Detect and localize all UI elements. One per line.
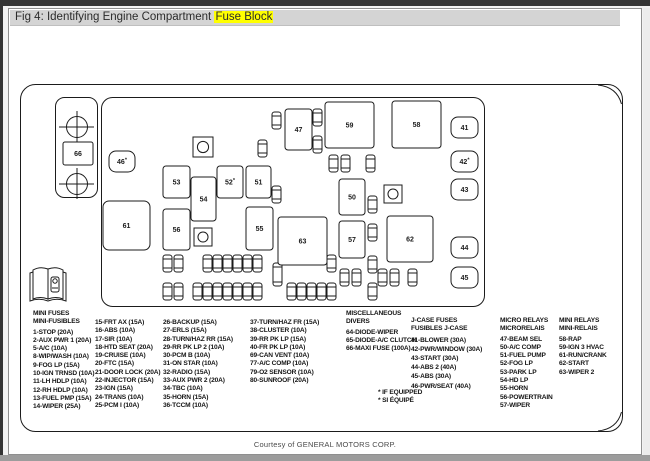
legend-header-line: MICRORELAIS [500,325,553,333]
legend-column-header: MINI RELAYSMINI-RELAIS [559,317,607,333]
legend-item: 5-A/C (10A) [33,345,94,353]
legend-item: 14-WIPER (25A) [33,403,94,411]
legend-item: 64-DIODE-WIPER [346,329,416,337]
legend-item: 33-AUX PWR 2 (20A) [163,377,233,385]
legend-item: 21-DOOR LOCK (20A) [95,369,160,377]
legend-item: 31-ON STAR (10A) [163,360,233,368]
legend-mini-relays: MINI RELAYSMINI-RELAIS58-RAP59-IGN 3 HVA… [559,317,607,377]
legend-item: 61-RUN/CRANK [559,352,607,360]
legend-item: 17-SIR (10A) [95,336,160,344]
legend-header-line: FUSIBLES J-CASE [411,325,482,333]
legend-item: 59-IGN 3 HVAC [559,344,607,352]
legend-item: 55-HORN [500,385,553,393]
legend-item: 44-ABS 2 (40A) [411,363,482,372]
legend-item: 12-RH HDLP (10A) [33,387,94,395]
legend-if-equipped-note: * IF EQUIPPED* SI ÉQUIPÉ [378,389,422,406]
legend-item: 28-TURN/HAZ RR (15A) [163,336,233,344]
legend-item: 63-WIPER 2 [559,369,607,377]
legend-header-line: MISCELLANEOUS [346,310,416,318]
legend-item: 34-TBC (10A) [163,385,233,393]
legend-item: 58-RAP [559,336,607,344]
legend-item: 9-FOG LP (15A) [33,362,94,370]
legend-header-line: MINI FUSES [33,310,94,318]
window-left-edge [0,0,3,461]
legend-header-line: MINI-FUSIBLES [33,318,94,326]
legend-item: 15-FRT AX (15A) [95,319,160,327]
legend-header-line: J-CASE FUSES [411,317,482,325]
legend-item: 16-ABS (10A) [95,327,160,335]
legend-item: 38-CLUSTER (10A) [250,327,319,335]
legend-mini-fuses-3: 26-BACKUP (15A)27-ERLS (15A)28-TURN/HAZ … [163,319,233,410]
legend-item: 8-WIP/WASH (10A) [33,353,94,361]
legend-item: 77-A/C COMP (10A) [250,360,319,368]
legend-item: 23-IGN (15A) [95,385,160,393]
legend-item: 51-FUEL PUMP [500,352,553,360]
legend-column-header: MICRO RELAYSMICRORELAIS [500,317,553,333]
legend-item: 62-START [559,360,607,368]
legend-item: 13-FUEL PMP (15A) [33,395,94,403]
legend-item: 69-CAN VENT (10A) [250,352,319,360]
legend-item: 36-TCCM (10A) [163,402,233,410]
fuse-legend: MINI FUSESMINI-FUSIBLES1-STOP (20A)2-AUX… [0,0,650,461]
legend-mini-fuses-1: MINI FUSESMINI-FUSIBLES1-STOP (20A)2-AUX… [33,310,94,412]
legend-item: 30-PCM B (10A) [163,352,233,360]
legend-item: 50-A/C COMP [500,344,553,352]
legend-item: 1-STOP (20A) [33,329,94,337]
legend-item: 25-PCM I (10A) [95,402,160,410]
window-top-edge [0,0,650,6]
legend-item: 22-INJECTOR (15A) [95,377,160,385]
legend-column-header: MINI FUSESMINI-FUSIBLES [33,310,94,326]
legend-item: 54-HD LP [500,377,553,385]
window-bottom-edge [0,455,650,461]
legend-header-line: MINI-RELAIS [559,325,607,333]
legend-item: 26-BACKUP (15A) [163,319,233,327]
legend-item: 11-LH HDLP (10A) [33,378,94,386]
copyright-credit: Courtesy of GENERAL MOTORS CORP. [0,440,650,449]
legend-item: 52-FOG LP [500,360,553,368]
legend-item: 47-BEAM SEL [500,336,553,344]
legend-item: 2-AUX PWR 1 (20A) [33,337,94,345]
legend-item: * SI ÉQUIPÉ [378,397,422,405]
legend-item: 42-PWR/WINDOW (30A) [411,345,482,354]
legend-header-line: DIVERS [346,318,416,326]
legend-item: 10-IGN TRNSD (10A) [33,370,94,378]
screenshot-root: Fig 4: Identifying Engine Compartment Fu… [0,0,650,461]
legend-item: 35-HORN (15A) [163,394,233,402]
legend-item: 57-WIPER [500,402,553,410]
legend-mini-fuses-2: 15-FRT AX (15A)16-ABS (10A)17-SIR (10A)1… [95,319,160,410]
legend-item: 80-SUNROOF (20A) [250,377,319,385]
legend-item: 39-RR PK LP (15A) [250,336,319,344]
legend-item: 32-RADIO (15A) [163,369,233,377]
legend-item: 56-POWERTRAIN [500,394,553,402]
legend-miscellaneous: MISCELLANEOUSDIVERS64-DIODE-WIPER65-DIOD… [346,310,416,353]
legend-item: 65-DIODE-A/C CLUTCH [346,337,416,345]
legend-item: 20-FTC (15A) [95,360,160,368]
window-right-gutter [643,8,650,455]
legend-column-header: J-CASE FUSESFUSIBLES J-CASE [411,317,482,333]
legend-item: 24-TRANS (10A) [95,394,160,402]
legend-item: 18-HTD SEAT (20A) [95,344,160,352]
legend-item: 27-ERLS (15A) [163,327,233,335]
legend-item: 29-RR PK LP 2 (10A) [163,344,233,352]
legend-micro-relays: MICRO RELAYSMICRORELAIS47-BEAM SEL50-A/C… [500,317,553,410]
legend-jcase-fuses: J-CASE FUSESFUSIBLES J-CASE41-BLOWER (30… [411,317,482,391]
legend-item: 40-FR PK LP (10A) [250,344,319,352]
legend-mini-fuses-4: 37-TURN/HAZ FR (15A)38-CLUSTER (10A)39-R… [250,319,319,385]
legend-item: 53-PARK LP [500,369,553,377]
legend-item: 37-TURN/HAZ FR (15A) [250,319,319,327]
legend-item: 45-ABS (30A) [411,372,482,381]
legend-item: 19-CRUISE (10A) [95,352,160,360]
legend-column-header: MISCELLANEOUSDIVERS [346,310,416,326]
legend-item: 79-O2 SENSOR (10A) [250,369,319,377]
legend-item: 66-MAXI FUSE (100A) [346,345,416,353]
legend-header-line: MINI RELAYS [559,317,607,325]
legend-item: 41-BLOWER (30A) [411,336,482,345]
legend-item: 43-START (30A) [411,354,482,363]
legend-header-line: MICRO RELAYS [500,317,553,325]
